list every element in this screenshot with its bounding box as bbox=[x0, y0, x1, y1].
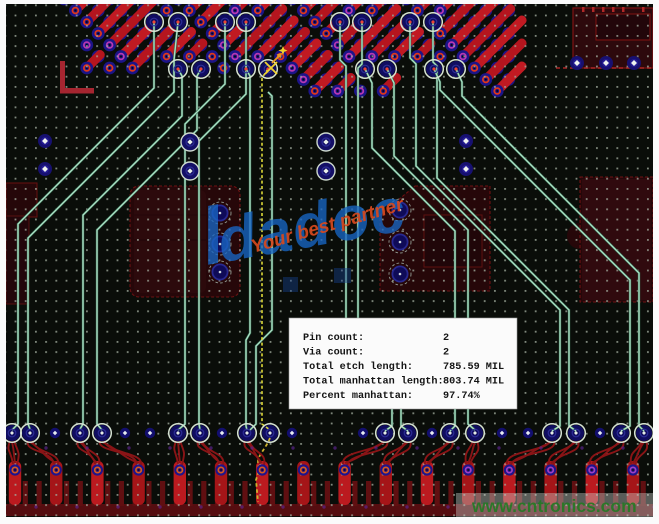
svg-text:785.59 MIL: 785.59 MIL bbox=[443, 362, 504, 373]
svg-text:Percent manhattan:: Percent manhattan: bbox=[303, 390, 413, 402]
svg-text:Total manhattan length:: Total manhattan length: bbox=[303, 376, 444, 388]
svg-text:www.cntronics.com: www.cntronics.com bbox=[471, 496, 637, 516]
svg-text:Total etch length:: Total etch length: bbox=[303, 361, 413, 373]
svg-text:2: 2 bbox=[443, 333, 449, 344]
svg-text:2: 2 bbox=[443, 348, 449, 359]
svg-text:Via count:: Via count: bbox=[303, 347, 364, 359]
svg-text:Pin count:: Pin count: bbox=[303, 332, 364, 344]
svg-text:97.74%: 97.74% bbox=[443, 391, 481, 402]
svg-text:803.74 MIL: 803.74 MIL bbox=[443, 377, 504, 388]
